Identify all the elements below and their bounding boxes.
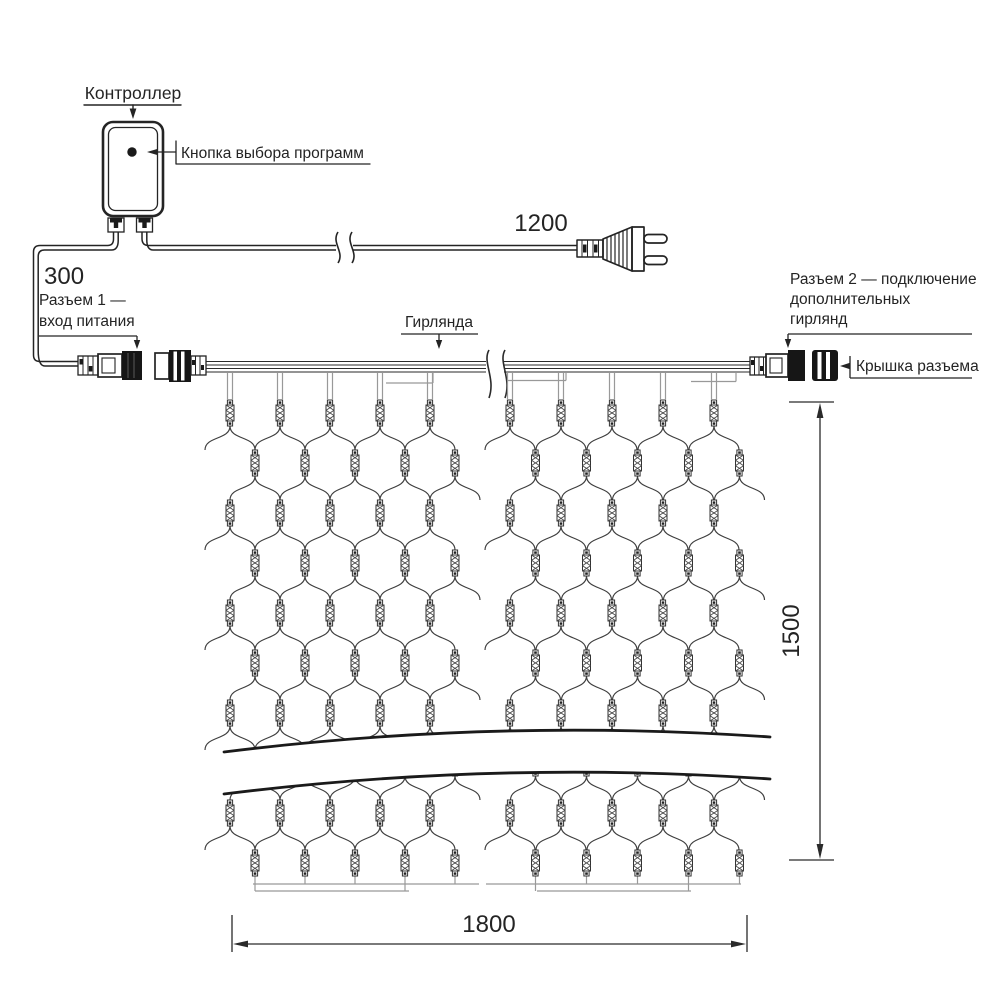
plug-pin — [644, 235, 667, 244]
program-select-button — [127, 147, 136, 156]
cap-label: Крышка разъема — [856, 358, 979, 375]
arrow-up-icon — [817, 403, 824, 418]
power-plug — [577, 227, 667, 271]
arrow-right-icon — [731, 941, 746, 948]
garland-label: Гирлянда — [401, 314, 478, 349]
arrow-left-icon — [147, 149, 158, 155]
controller-box — [103, 122, 163, 216]
dimension-width: 1800 — [232, 911, 747, 952]
lead-length-300: 300 — [44, 263, 84, 290]
garland-label-text: Гирлянда — [405, 314, 473, 331]
garland-wire-bundle — [206, 350, 750, 398]
dimension-height: 1500 — [778, 402, 834, 860]
power-cable: 1200 — [142, 210, 577, 263]
net-break-band — [224, 730, 770, 794]
arrow-down-icon — [817, 844, 824, 859]
arrow-left-icon — [233, 941, 248, 948]
controller: Контроллер Кнопка выбора программ — [84, 83, 370, 232]
connector2-label-line1: Разъем 2 — подключение — [790, 271, 977, 288]
connector-1: 300 Разъем 1 — вход питания — [39, 263, 206, 382]
connector2-label-line2: дополнительных — [790, 291, 910, 308]
arrow-down-icon — [785, 339, 791, 348]
arrow-down-icon — [130, 109, 137, 120]
arrow-left-icon — [840, 363, 850, 369]
connector1-plug — [122, 351, 142, 380]
arrow-down-icon — [436, 340, 442, 349]
height-value: 1500 — [778, 604, 805, 657]
net-panel-left — [205, 373, 480, 891]
diagram-canvas: Контроллер Кнопка выбора программ 1200 — [0, 0, 1000, 1000]
connector2-label-line3: гирлянд — [790, 311, 847, 328]
net-panel-right — [485, 373, 765, 891]
plug-pin — [644, 256, 667, 265]
connector-cap: Крышка разъема — [812, 350, 979, 381]
cap-body — [812, 350, 838, 381]
controller-label: Контроллер — [85, 83, 182, 103]
arrow-down-icon — [134, 340, 140, 349]
net-curtain — [205, 373, 765, 891]
connector1-socket — [169, 350, 191, 382]
controller-cable-gland — [108, 218, 153, 232]
connector2-socket — [788, 350, 805, 381]
program-button-label: Кнопка выбора программ — [181, 145, 364, 162]
product-schematic: Контроллер Кнопка выбора программ 1200 — [0, 0, 1000, 1000]
connector1-label-line2: вход питания — [39, 313, 135, 330]
connector1-label-line1: Разъем 1 — — [39, 292, 126, 309]
width-value: 1800 — [462, 911, 515, 938]
cable-length-1200: 1200 — [514, 210, 567, 237]
